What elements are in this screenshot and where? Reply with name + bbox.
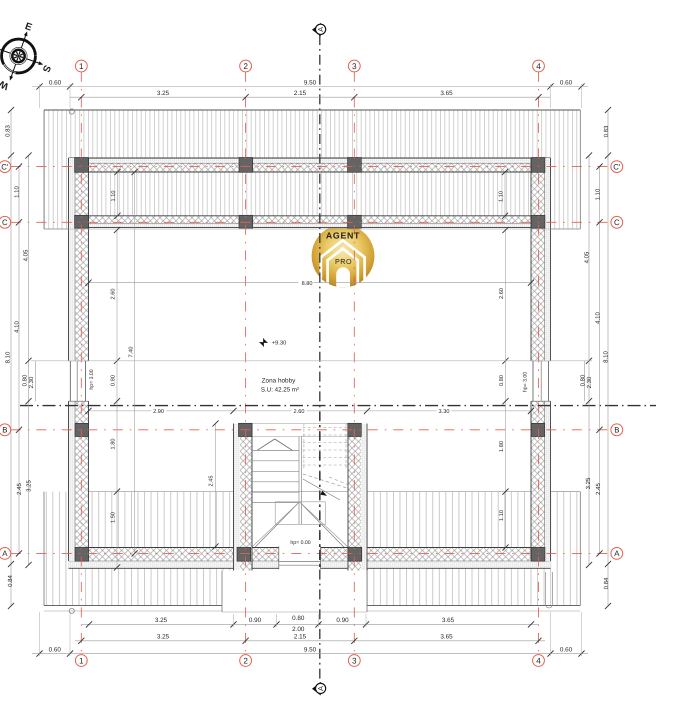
- svg-text:0.80: 0.80: [292, 615, 305, 622]
- svg-text:A: A: [2, 549, 8, 558]
- svg-text:8.10: 8.10: [5, 351, 12, 363]
- svg-text:2.90: 2.90: [153, 409, 164, 415]
- svg-text:0.80: 0.80: [580, 374, 587, 386]
- svg-text:B: B: [2, 426, 7, 435]
- svg-text:0.80: 0.80: [111, 375, 117, 386]
- svg-text:7.40: 7.40: [129, 347, 135, 358]
- svg-text:0.60: 0.60: [49, 79, 62, 86]
- svg-text:2.60: 2.60: [294, 409, 305, 415]
- svg-text:1.50: 1.50: [111, 512, 117, 523]
- svg-text:0.60: 0.60: [49, 646, 62, 653]
- svg-text:3.25: 3.25: [26, 480, 33, 492]
- svg-text:0.84: 0.84: [7, 575, 14, 587]
- svg-text:S.U: 42.25 m²: S.U: 42.25 m²: [261, 387, 299, 394]
- svg-text:2.60: 2.60: [111, 289, 117, 300]
- svg-text:2: 2: [243, 62, 248, 71]
- svg-text:0.80: 0.80: [499, 375, 505, 386]
- svg-text:A: A: [614, 549, 620, 558]
- svg-text:3.25: 3.25: [157, 634, 170, 641]
- svg-text:3.25: 3.25: [155, 617, 168, 624]
- svg-text:3: 3: [352, 656, 357, 665]
- svg-text:4.10: 4.10: [595, 312, 602, 324]
- svg-text:4.05: 4.05: [584, 251, 591, 263]
- svg-text:4.10: 4.10: [14, 321, 21, 333]
- svg-text:2: 2: [243, 656, 248, 665]
- svg-text:1.10: 1.10: [499, 510, 505, 521]
- svg-text:0.90: 0.90: [336, 617, 349, 624]
- svg-text:2.45: 2.45: [208, 476, 214, 487]
- svg-text:2.45: 2.45: [595, 483, 602, 495]
- svg-text:9.50: 9.50: [304, 646, 317, 653]
- svg-text:2.30: 2.30: [586, 376, 593, 388]
- svg-text:3.25: 3.25: [157, 90, 170, 97]
- svg-text:0.90: 0.90: [249, 617, 262, 624]
- svg-text:2.45: 2.45: [16, 483, 23, 495]
- svg-text:4: 4: [536, 62, 541, 71]
- svg-text:4: 4: [536, 656, 541, 665]
- svg-text:3.65: 3.65: [440, 90, 453, 97]
- svg-text:C': C': [613, 162, 621, 171]
- svg-text:0.83: 0.83: [603, 125, 610, 137]
- svg-text:C: C: [2, 218, 8, 227]
- svg-text:0.60: 0.60: [560, 79, 573, 86]
- svg-text:C': C': [1, 162, 9, 171]
- svg-text:3.30: 3.30: [439, 409, 450, 415]
- svg-text:4.05: 4.05: [23, 249, 30, 261]
- svg-text:B: B: [614, 426, 619, 435]
- svg-text:hp= 3.00: hp= 3.00: [523, 372, 529, 392]
- svg-text:2.15: 2.15: [294, 90, 307, 97]
- svg-text:Zona hobby: Zona hobby: [262, 378, 297, 385]
- svg-text:2.15: 2.15: [294, 634, 307, 641]
- svg-text:1: 1: [79, 62, 84, 71]
- svg-text:3.65: 3.65: [442, 617, 455, 624]
- svg-text:0.84: 0.84: [603, 577, 610, 589]
- svg-text:+9.30: +9.30: [272, 340, 287, 347]
- svg-text:3.65: 3.65: [440, 634, 453, 641]
- svg-text:hp= 0.00: hp= 0.00: [290, 540, 310, 546]
- svg-text:0.80: 0.80: [22, 374, 29, 386]
- svg-text:1.10: 1.10: [111, 191, 117, 202]
- svg-text:hp= 3.00: hp= 3.00: [89, 369, 95, 389]
- svg-text:AGENT: AGENT: [326, 231, 360, 241]
- svg-text:C: C: [614, 218, 620, 227]
- svg-text:0.83: 0.83: [5, 125, 12, 137]
- svg-text:1.10: 1.10: [595, 188, 602, 200]
- svg-text:1.10: 1.10: [14, 186, 21, 198]
- svg-text:1.80: 1.80: [499, 441, 505, 452]
- svg-text:1.10: 1.10: [499, 191, 505, 202]
- svg-text:2.60: 2.60: [499, 288, 505, 299]
- svg-text:2.00: 2.00: [292, 626, 305, 633]
- svg-text:1.80: 1.80: [111, 439, 117, 450]
- svg-text:8.10: 8.10: [603, 351, 610, 363]
- svg-text:A: A: [316, 686, 325, 691]
- svg-text:PRO: PRO: [335, 257, 352, 266]
- svg-text:2.30: 2.30: [28, 376, 35, 388]
- svg-text:8.80: 8.80: [302, 281, 313, 287]
- svg-text:9.50: 9.50: [304, 79, 317, 86]
- svg-text:1: 1: [79, 656, 84, 665]
- svg-text:3.25: 3.25: [585, 477, 592, 489]
- svg-text:0.60: 0.60: [560, 646, 573, 653]
- svg-text:A: A: [316, 27, 325, 32]
- svg-text:3: 3: [352, 62, 357, 71]
